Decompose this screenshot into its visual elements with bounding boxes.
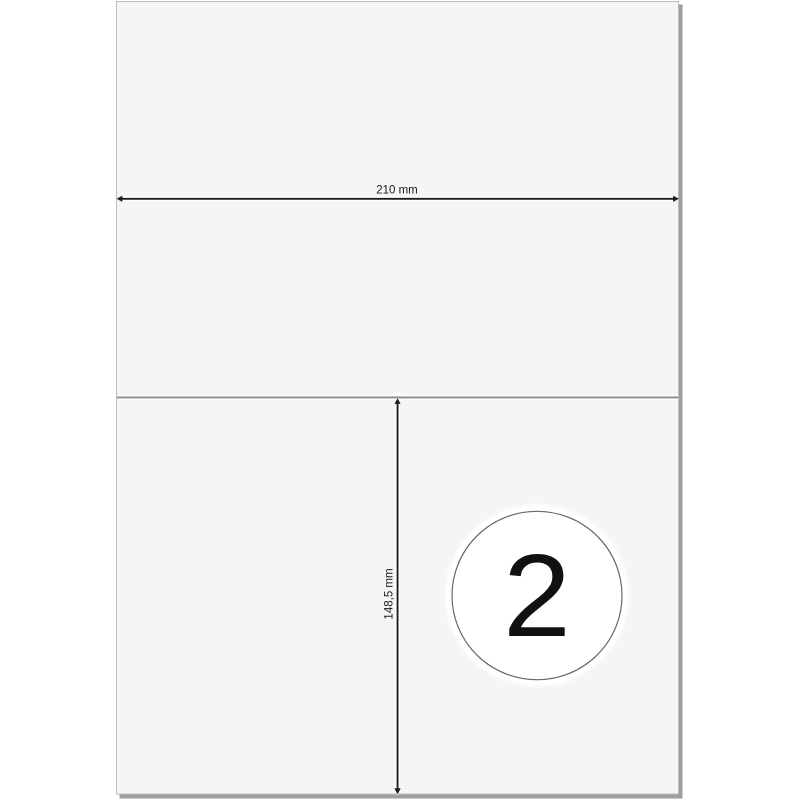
svg-text:210 mm: 210 mm	[376, 185, 418, 197]
svg-text:148,5 mm: 148,5 mm	[383, 568, 395, 619]
svg-text:2: 2	[503, 531, 571, 661]
